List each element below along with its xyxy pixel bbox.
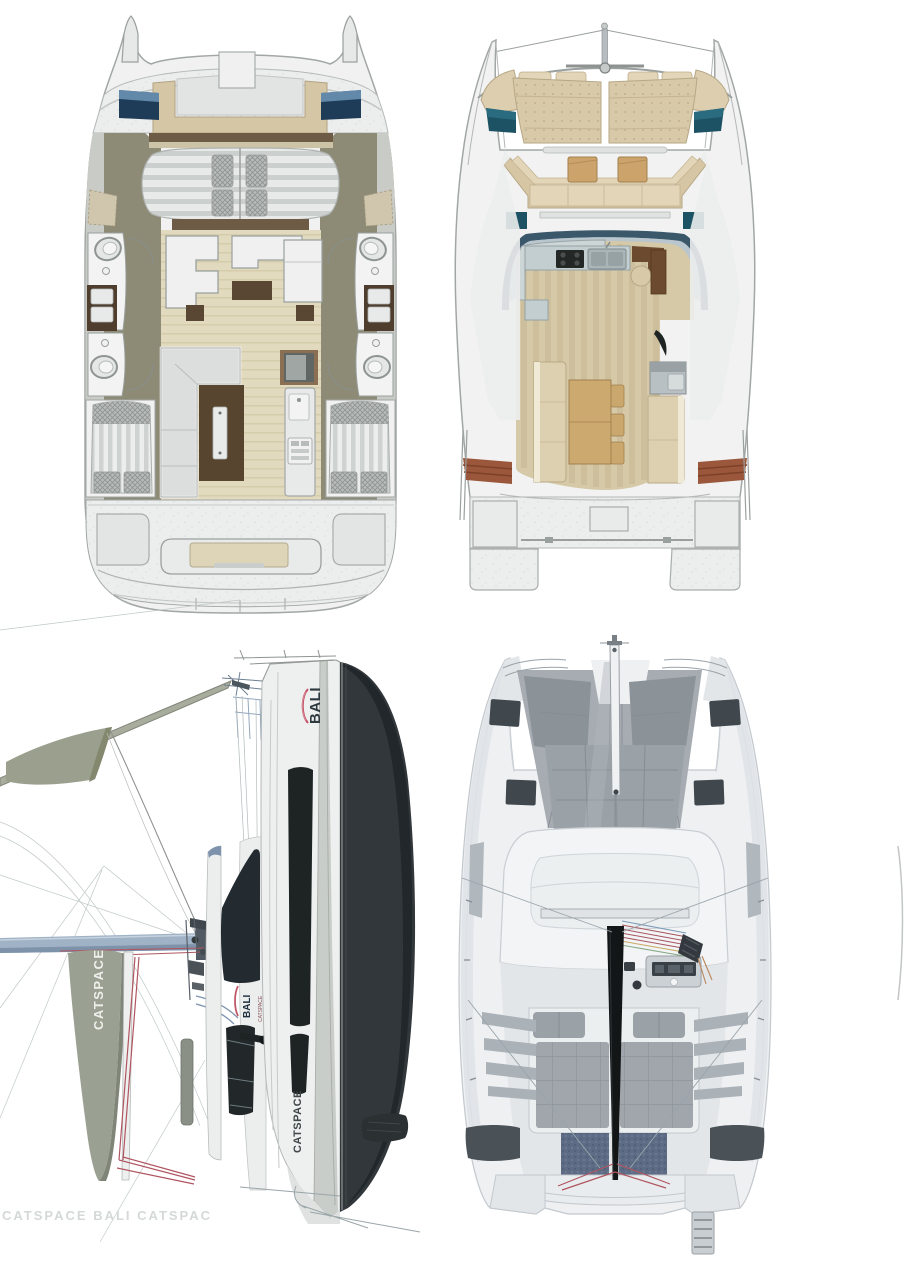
svg-text:CATSPACE BALI CATSPAC: CATSPACE BALI CATSPAC [2,1208,212,1223]
svg-text:CATSPACE: CATSPACE [91,948,106,1030]
svg-text:BALI: BALI [307,687,324,724]
svg-text:BALI: BALI [242,994,253,1018]
svg-text:CATSPACE: CATSPACE [292,1090,304,1153]
